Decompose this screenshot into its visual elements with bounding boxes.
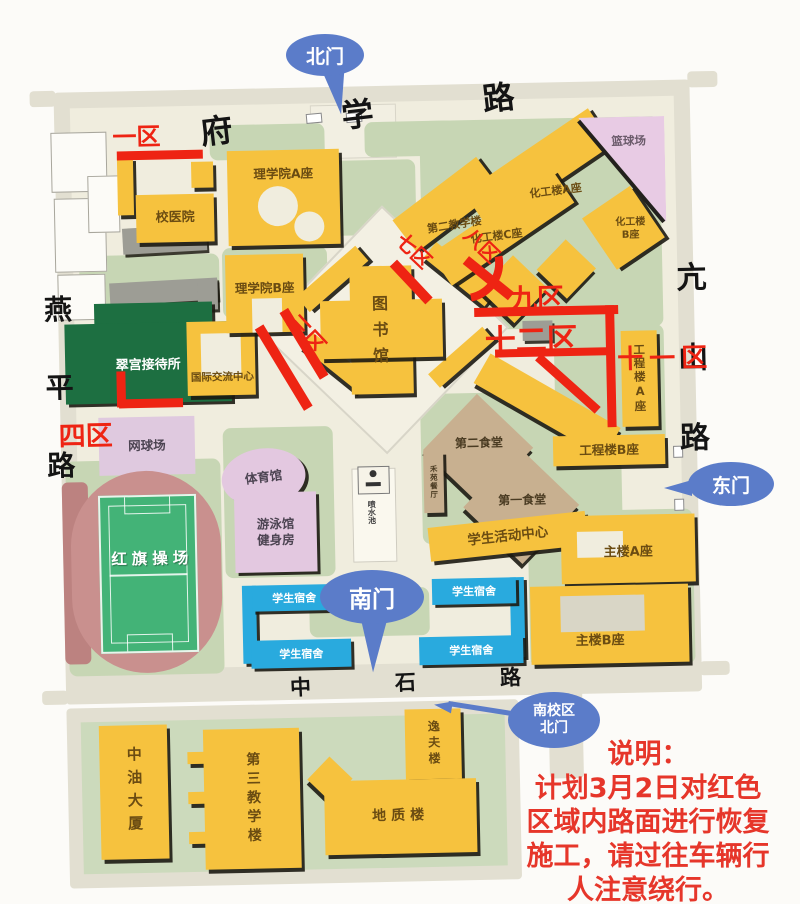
label-library: 图书馆 <box>368 284 390 384</box>
label-dorm: 学生宿舍 <box>272 589 316 606</box>
building-swim: 游泳馆 健身房 <box>234 491 318 573</box>
building-school-hospital: 校医院 <box>136 193 215 243</box>
label-heyuan-restaurant: 禾苑餐厅 <box>429 465 439 499</box>
construction-bar <box>119 398 183 408</box>
building-teach3: 第三教学楼 <box>203 728 302 870</box>
building-zhongyou-tower: 中油大厦 <box>99 725 170 860</box>
label-tennis: 网球场 <box>128 438 166 454</box>
notice-title: 说明： <box>498 738 798 772</box>
notice-line: 施工，请过往车辆行 <box>498 840 798 874</box>
campus-map: 翠宫接待所 国际交流中心 校医院 理学院A座 理学院B座 图书馆 第二教学楼 化… <box>0 0 800 904</box>
building-dorm: 学生宿舍 <box>419 635 524 665</box>
label-intl-center: 国际交流中心 <box>181 370 263 385</box>
gate-bubble-north: 北门 <box>286 34 364 76</box>
label-dorm: 学生宿舍 <box>449 642 493 659</box>
building-block <box>117 157 134 215</box>
main-b-courtyard <box>560 595 645 633</box>
label-school-hospital: 校医院 <box>155 210 194 227</box>
building-dorm: 学生宿舍 <box>432 577 517 605</box>
label-canteen2: 第二食堂 <box>439 435 519 452</box>
building-eng-b: 工程楼B座 <box>553 434 666 466</box>
zone-label-9: 九区 <box>509 276 564 316</box>
building-yifu: 逸夫楼 <box>404 708 461 779</box>
notice-line: 计划3月2日对红色 <box>498 772 798 806</box>
building-geology: 地质楼 <box>324 778 478 855</box>
label-gym: 体育馆 <box>244 467 283 487</box>
label-chem-b: 化工楼 B座 <box>604 216 657 242</box>
offcampus-building <box>87 175 120 233</box>
label-zhongyou-tower: 中油大厦 <box>124 746 145 838</box>
notice-line: 人注意绕行。 <box>498 874 798 904</box>
label-dorm: 学生宿舍 <box>452 583 496 600</box>
road-stub <box>29 91 55 108</box>
label-fountain: 喷水池 <box>366 500 378 550</box>
building-heyuan-restaurant: 禾苑餐厅 <box>423 451 444 513</box>
stadium-pitch <box>98 494 199 654</box>
gate-pointer-south-campus-tip <box>433 699 453 714</box>
label-yifu: 逸夫楼 <box>425 720 441 768</box>
road-stub <box>687 71 717 88</box>
zone-label-12: 十二区 <box>484 314 578 361</box>
label-basketball: 篮球场 <box>596 132 660 149</box>
label-stadium: 红旗操场 <box>87 545 217 570</box>
zone-label-4: 四区 <box>58 414 113 454</box>
gate-bubble-south: 南门 <box>320 570 424 624</box>
road-stub <box>42 691 68 706</box>
road-label-west: 燕平路 <box>36 294 81 529</box>
building-dorm: 学生宿舍 <box>251 639 352 669</box>
label-science-b: 理学院B座 <box>225 280 303 297</box>
label-teach3: 第三教学楼 <box>243 751 262 846</box>
gate-bubble-east: 东门 <box>688 462 774 506</box>
intl-center-courtyard <box>201 333 242 376</box>
building-block <box>191 161 214 187</box>
zone-label-11: 十一区 <box>617 337 714 376</box>
zone-label-1: 一区 <box>112 117 161 153</box>
statue-icon <box>357 466 390 495</box>
notice-line: 区域内路面进行恢复 <box>498 806 798 840</box>
label-main-a: 主楼A座 <box>573 544 683 563</box>
label-geology: 地质楼 <box>372 807 429 826</box>
label-hotel: 翠宫接待所 <box>115 353 180 373</box>
label-main-b: 主楼B座 <box>545 632 655 651</box>
label-canteen1: 第一食堂 <box>480 492 564 509</box>
label-eng-b: 工程楼B座 <box>579 442 639 459</box>
label-student-center: 学生活动中心 <box>467 524 549 550</box>
label-swim: 游泳馆 健身房 <box>257 516 295 548</box>
label-science-a: 理学院A座 <box>229 165 337 183</box>
road-stub <box>700 661 730 676</box>
label-dorm: 学生宿舍 <box>279 645 323 662</box>
